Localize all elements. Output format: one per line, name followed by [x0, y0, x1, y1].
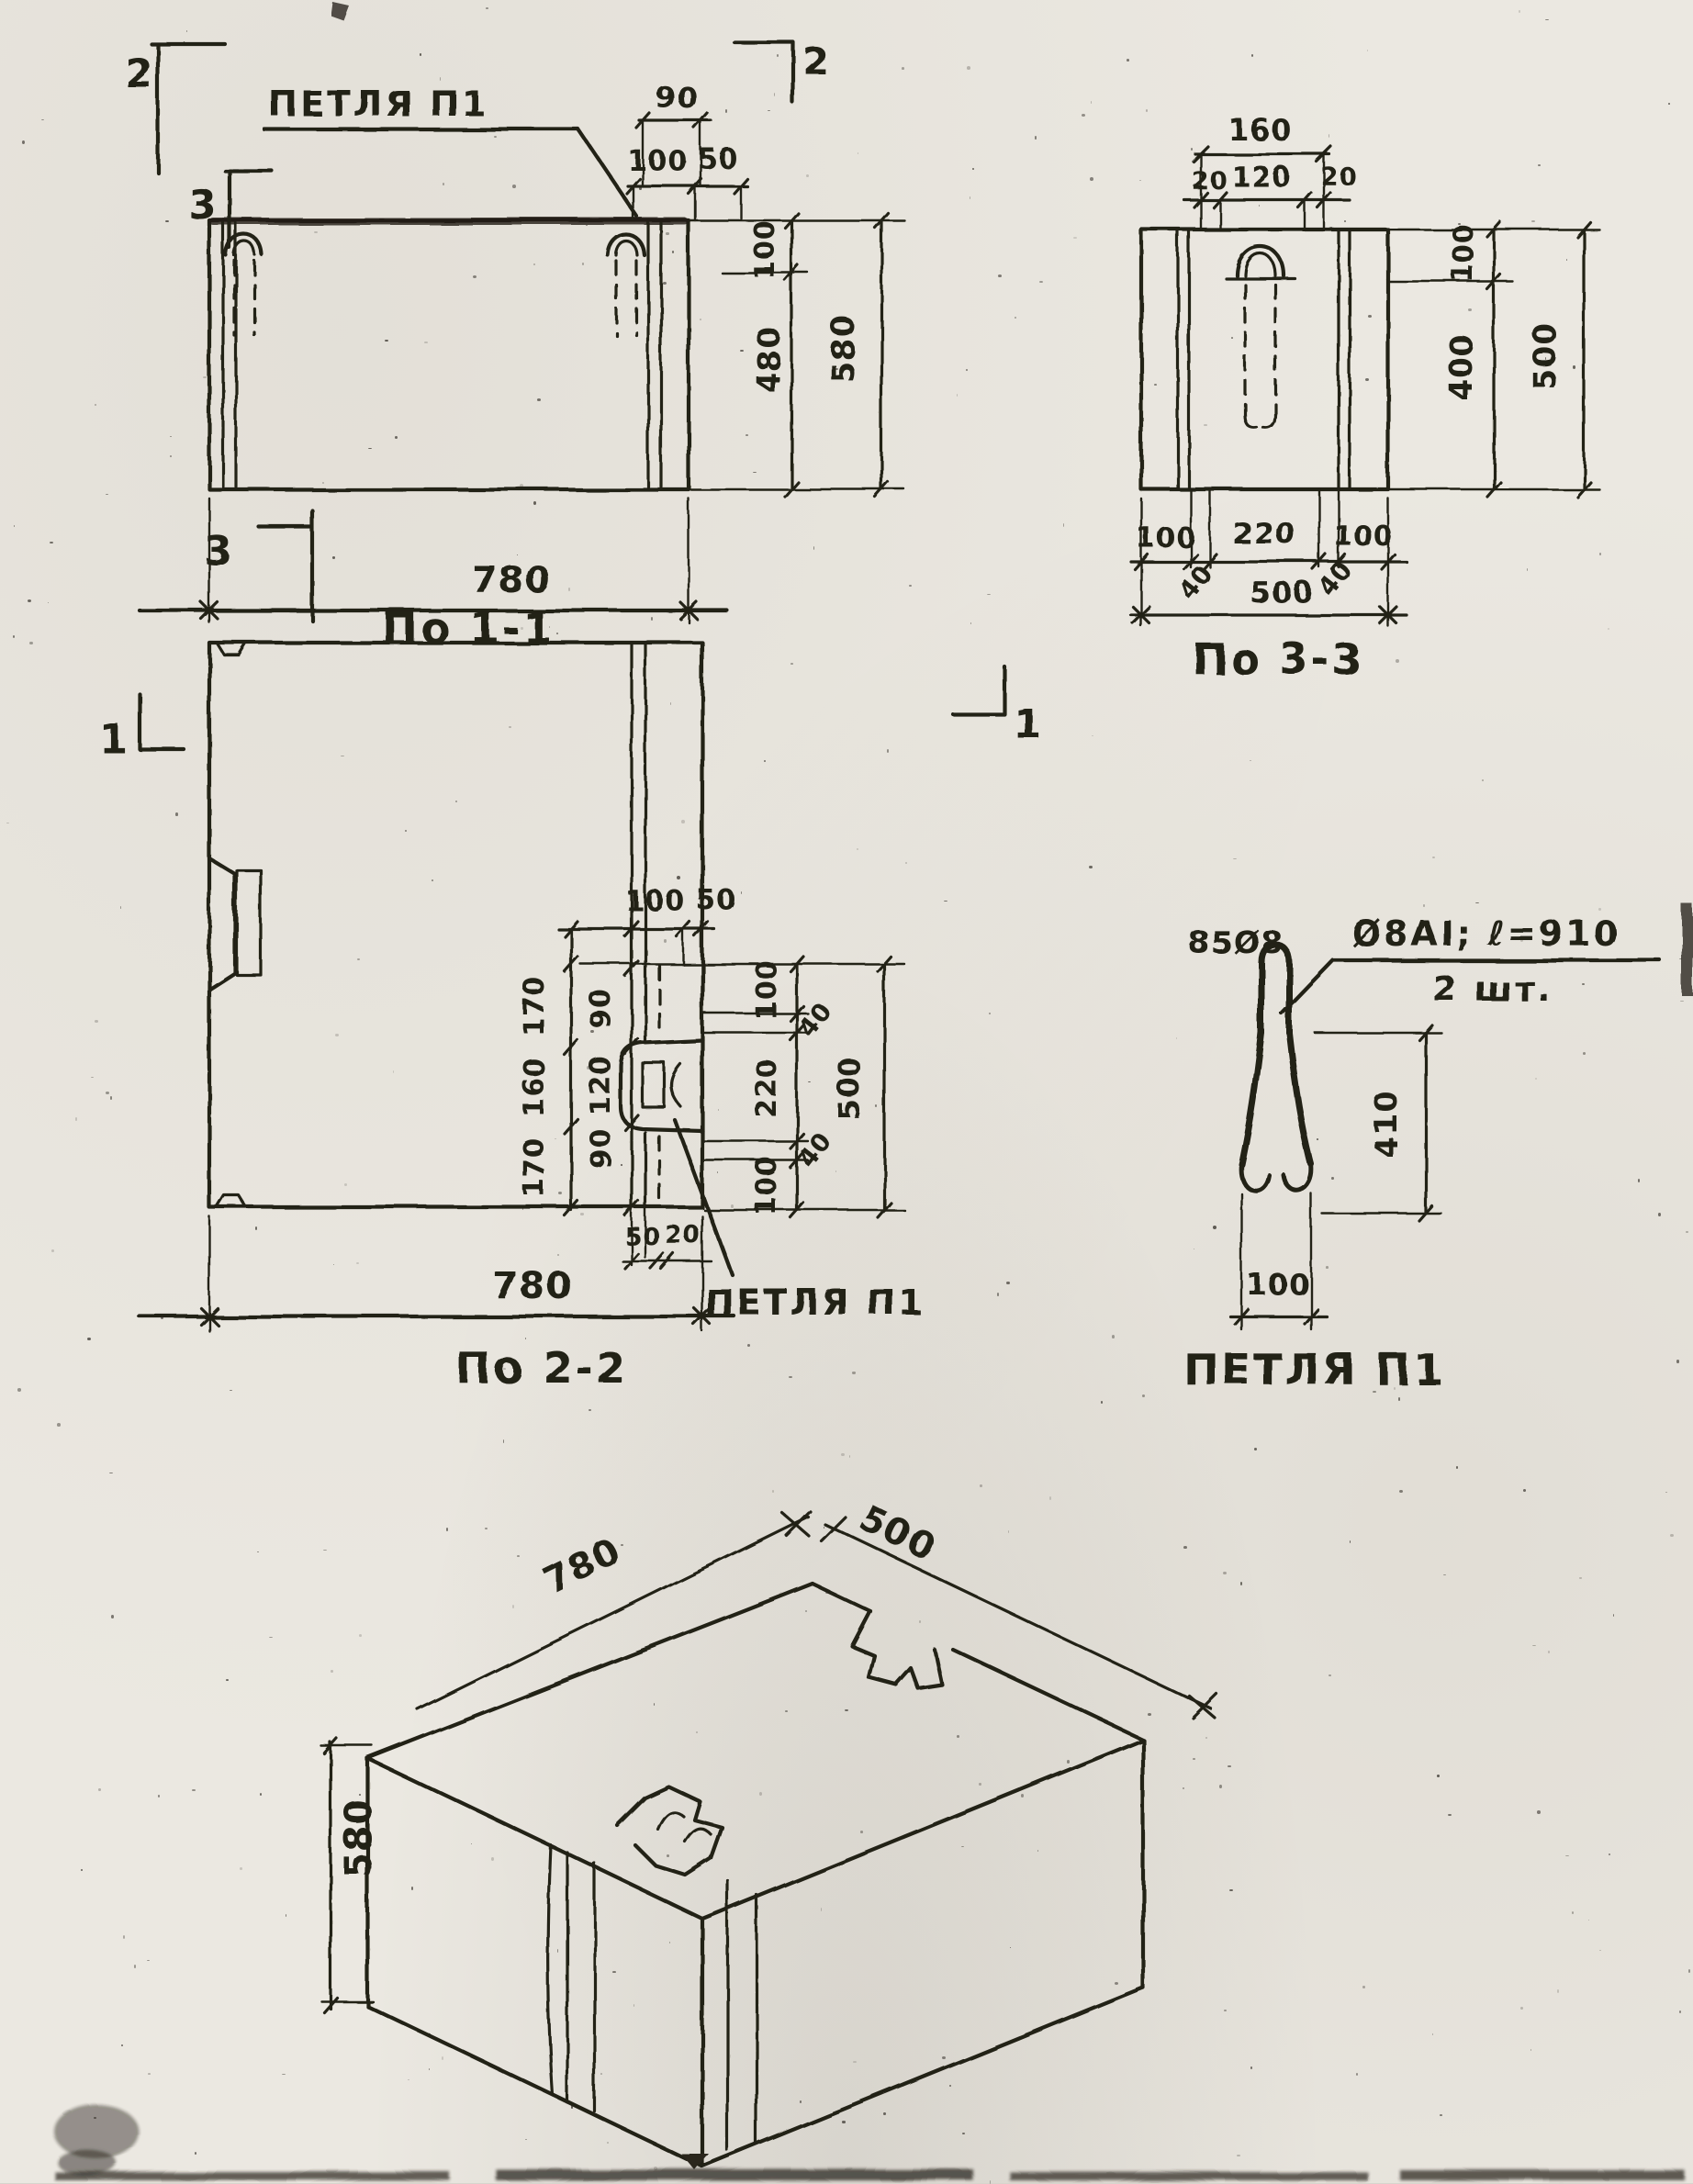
dim-90: 90: [656, 80, 699, 115]
dim-40-bl: 40: [1174, 560, 1219, 606]
ne-edge-segment: [813, 1584, 870, 1611]
loop-qty-text: 2 шт.: [1432, 969, 1553, 1009]
dim-40-ra: 40: [793, 997, 838, 1043]
dim-ext-right: [690, 220, 904, 489]
dim-ext-top-lower: [633, 186, 741, 220]
caption-view-1-1: По 1-1: [382, 603, 554, 653]
bottom-smear-3: [1010, 2172, 1368, 2180]
section-marker-3-digit: 3: [188, 182, 218, 229]
left-side-notch: [209, 858, 235, 990]
dim-120: 120: [1231, 162, 1292, 194]
view-section-1-1: ПЕТЛЯ П1 90 100 50 100 480 580: [125, 40, 904, 653]
dim-780-bottom: 780: [493, 1265, 573, 1307]
top-edge-mark: [331, 2, 349, 20]
right-face-groove-lines: [727, 1880, 757, 2150]
dim-120: 120: [585, 1055, 617, 1115]
view-section-3-3: 160 20 120 20 100 400 500 100 220 100: [1131, 112, 1599, 684]
dim-50-pocket: 50: [624, 1223, 661, 1251]
dim-410: 410: [1369, 1091, 1406, 1159]
groove-lines: [1178, 231, 1350, 487]
dim-100: 100: [1246, 1267, 1310, 1302]
dim-50-top: 50: [696, 884, 736, 916]
dim-20-right: 20: [1320, 162, 1357, 191]
dim-50-top: 50: [698, 143, 738, 175]
dim-100-top: 100: [627, 145, 688, 177]
caption-loop-p1: ПЕТЛЯ П1: [1183, 1345, 1445, 1394]
dim-100-br: 100: [1333, 521, 1394, 553]
dim-500-right: 500: [1527, 322, 1564, 390]
dim-ext-right: [704, 964, 904, 1210]
dim-500-bottom: 500: [1250, 575, 1314, 610]
left-notch-bar: [237, 870, 261, 975]
caption-view-2-2: По 2-2: [455, 1343, 627, 1393]
section-marker-2-digit: 2: [125, 50, 154, 97]
right-loop-hidden-legs: [616, 261, 636, 335]
section-marker-1r-bracket: [953, 666, 1004, 714]
dim-480-right: 480: [751, 326, 788, 394]
right-loop-arc: [608, 235, 645, 256]
section-marker-2r-digit: 2: [802, 40, 829, 83]
dim-170-a: 170: [519, 976, 551, 1036]
view-isometric: 780 500 580: [321, 1497, 1217, 2167]
dim-x-780: [782, 1511, 810, 1535]
dim-100-top: 100: [625, 886, 686, 918]
loop-spec-text: Ø8АI; ℓ=910: [1351, 913, 1620, 954]
dim-90-b: 90: [585, 1127, 617, 1168]
dim-20-left: 20: [1192, 167, 1228, 196]
bottom-smear-2: [496, 2169, 973, 2180]
loop-callout-label: ПЕТЛЯ П1: [705, 1282, 925, 1323]
dim-220-r: 220: [751, 1058, 783, 1118]
bottom-arrow-mark: [681, 2154, 709, 2170]
bend-label: 85Ø8: [1188, 924, 1284, 961]
scan-artifacts: [54, 2, 1693, 2180]
loop-callout-label: ПЕТЛЯ П1: [268, 84, 488, 124]
corner-blob-2: [58, 2150, 117, 2176]
dim-90-a: 90: [585, 988, 617, 1028]
section-marker-3b-digit: 3: [204, 528, 233, 575]
dim-100-rb: 100: [751, 1156, 783, 1216]
loop-hidden-legs: [1245, 285, 1275, 415]
loop-hooks: [1241, 1164, 1312, 1191]
dim-500-right: 500: [832, 1056, 867, 1120]
bottom-smear-1: [55, 2172, 450, 2180]
front-pocket-loop-marks: [657, 1811, 711, 1842]
dim-160: 160: [519, 1057, 551, 1117]
dim-20-pocket: 20: [665, 1221, 701, 1249]
dim-220-b: 220: [1232, 516, 1296, 551]
dim-780-iso: 780: [537, 1530, 627, 1603]
section-marker-2-bracket: [151, 44, 225, 173]
view-section-2-2: 100 50 170 160 170 90 120 90 100 220 100…: [99, 643, 1043, 1393]
bottom-smear-4: [1400, 2170, 1685, 2180]
dim-580-right: 580: [825, 315, 862, 383]
section-marker-1l-bracket: [140, 694, 184, 749]
section-marker-1r-digit: 1: [1014, 701, 1043, 748]
caption-view-3-3: По 3-3: [1192, 634, 1363, 684]
ne-edge-notch: [852, 1611, 942, 1688]
dim-100-bl: 100: [1136, 522, 1196, 554]
dim-100-right: 100: [1448, 223, 1480, 284]
dim-100-right: 100: [749, 219, 781, 280]
dim-100-ra: 100: [751, 959, 783, 1020]
left-face-groove-lines: [548, 1845, 595, 2111]
drawing-linework: ПЕТЛЯ П1 90 100 50 100 480 580: [0, 0, 1693, 2183]
dim-160: 160: [1228, 112, 1292, 147]
section-marker-2r-bracket: [734, 42, 793, 103]
dim-ext-100: [1241, 1193, 1311, 1329]
top-face-outline: [367, 1584, 1143, 1919]
section-marker-1l-digit: 1: [99, 716, 129, 763]
dim-170-b: 170: [519, 1137, 551, 1198]
scanned-drawing-sheet: ПЕТЛЯ П1 90 100 50 100 480 580: [0, 0, 1693, 2183]
right-groove-lines: [648, 223, 661, 487]
loop-legs: [1241, 1033, 1311, 1164]
right-loop-arc-inner: [616, 241, 637, 255]
right-edge-smudge: [1682, 904, 1693, 996]
loop-pocket-bar: [643, 1063, 665, 1107]
loop-arch-inner: [1245, 253, 1275, 275]
detail-loop-p1: 85Ø8 Ø8АI; ℓ=910 2 шт. 410 100 ПЕТЛЯ П1: [1183, 913, 1660, 1394]
section-marker-3b-bracket: [259, 510, 312, 621]
dim-ext-top: [683, 929, 701, 1008]
dim-40-rb: 40: [793, 1127, 838, 1173]
dim-780-bottom: 780: [472, 559, 552, 601]
dim-400-right: 400: [1443, 333, 1480, 401]
loop-pocket-loop-mark: [672, 1065, 681, 1107]
loop-leg-hooks: [1245, 415, 1275, 428]
dim-580-iso: 580: [338, 1798, 380, 1878]
